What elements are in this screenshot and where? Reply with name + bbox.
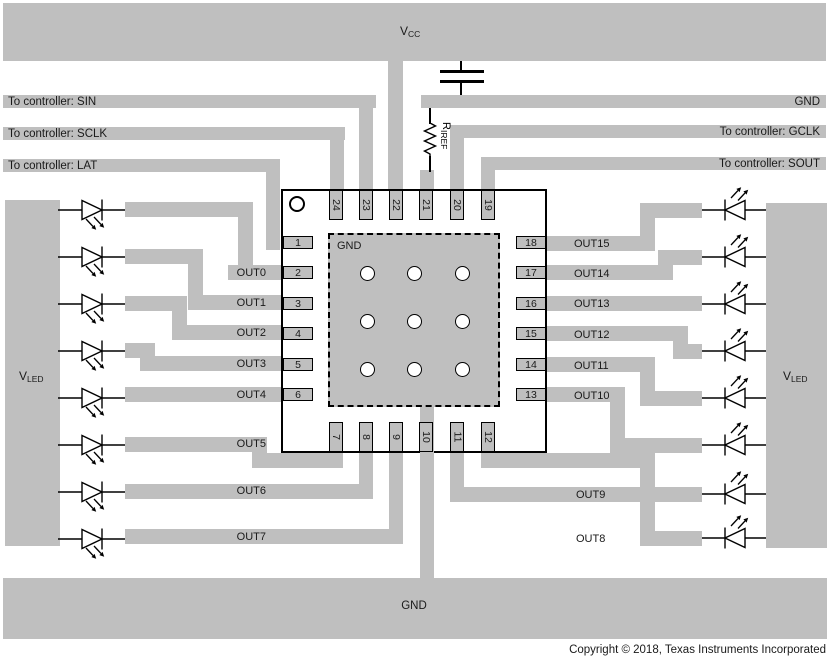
- led-left: [58, 292, 125, 332]
- led-left: [58, 245, 125, 285]
- riref-bottom-wire: [429, 156, 431, 172]
- led-left: [58, 480, 125, 520]
- pin-21: 21: [419, 190, 433, 220]
- led-left: [58, 433, 125, 473]
- out14-run: [658, 250, 702, 265]
- pin-9: 9: [389, 422, 403, 452]
- led-right: [702, 468, 766, 508]
- pin-11: 11: [450, 422, 464, 452]
- out15-run: [640, 203, 702, 218]
- out12-pin-trace: [544, 326, 688, 341]
- via: [360, 314, 375, 329]
- pad-gnd-label: GND: [337, 240, 361, 253]
- out11-run: [640, 391, 702, 406]
- led-left: [58, 198, 125, 238]
- pin-6: 6: [283, 388, 313, 401]
- led-left: [58, 386, 125, 426]
- capacitor-bottom-stem: [460, 83, 462, 95]
- out5-label: OUT5: [208, 438, 266, 451]
- gnd-bar-label: GND: [700, 96, 820, 109]
- via: [455, 362, 470, 377]
- via: [360, 362, 375, 377]
- out3-label: OUT3: [208, 358, 266, 371]
- out10-label: OUT10: [574, 390, 609, 403]
- pin-7: 7: [329, 422, 343, 452]
- sin-trace-vertical: [359, 95, 373, 190]
- via: [455, 266, 470, 281]
- led-right: [702, 419, 766, 459]
- pcb-layout-diagram: RIREF GND: [0, 0, 829, 662]
- sout-trace-vertical: [481, 157, 495, 190]
- out13-trace: [544, 296, 702, 311]
- pin-23: 23: [359, 190, 373, 220]
- sout-label: To controller: SOUT: [640, 158, 820, 171]
- lat-trace-vertical: [266, 159, 280, 250]
- out15-label: OUT15: [574, 238, 609, 251]
- pin-4: 4: [283, 327, 313, 340]
- vled-right-label: VLED: [783, 370, 808, 386]
- sin-label: To controller: SIN: [8, 96, 96, 109]
- led-right: [702, 325, 766, 365]
- copyright-notice: Copyright © 2018, Texas Instruments Inco…: [500, 644, 826, 657]
- riref-label: RIREF: [439, 122, 452, 149]
- out8-run2: [640, 531, 702, 546]
- via: [455, 314, 470, 329]
- led-left: [58, 527, 125, 567]
- sclk-trace-vertical: [330, 127, 344, 190]
- gclk-label: To controller: GCLK: [640, 126, 820, 139]
- out0-label: OUT0: [208, 267, 266, 280]
- riref-top-wire: [429, 108, 431, 124]
- via: [407, 314, 422, 329]
- gnd-plane-label: GND: [384, 600, 444, 613]
- vled-left-label: VLED: [19, 370, 44, 386]
- riref-resistor-icon: [421, 123, 439, 157]
- pin8-stub: [359, 450, 373, 499]
- pin9-stub: [389, 450, 403, 544]
- via: [407, 362, 422, 377]
- vcc-trace-vertical: [388, 58, 403, 190]
- out6-label: OUT6: [208, 485, 266, 498]
- out12-label: OUT12: [574, 329, 609, 342]
- out8-run1: [481, 453, 655, 468]
- pin-18: 18: [516, 236, 546, 249]
- out2-label: OUT2: [208, 327, 266, 340]
- out9-label: OUT9: [576, 489, 605, 502]
- out12-run: [673, 344, 702, 359]
- led-right: [702, 372, 766, 412]
- led-left: [58, 339, 125, 379]
- pin-2: 2: [283, 266, 313, 279]
- out4-label: OUT4: [208, 389, 266, 402]
- pin-22: 22: [389, 190, 403, 220]
- pin-17: 17: [516, 266, 546, 279]
- pin-20: 20: [450, 190, 464, 220]
- pin-3: 3: [283, 297, 313, 310]
- out7-label: OUT7: [208, 531, 266, 544]
- pin-13: 13: [516, 388, 546, 401]
- gclk-trace-vertical: [450, 125, 464, 190]
- lat-label: To controller: LAT: [8, 160, 97, 173]
- pin-10: 10: [419, 422, 433, 452]
- vcc-label: VCC: [400, 25, 420, 41]
- capacitor-plate-bottom: [440, 80, 484, 83]
- pin-15: 15: [516, 327, 546, 340]
- pin-8: 8: [359, 422, 373, 452]
- pin1-indicator-icon: [289, 196, 305, 212]
- iref-pad-stub: [420, 170, 434, 190]
- out11-label: OUT11: [574, 360, 609, 373]
- out8-label: OUT8: [576, 533, 605, 546]
- sclk-label: To controller: SCLK: [8, 128, 107, 141]
- out13-label: OUT13: [574, 298, 609, 311]
- out10-run: [610, 438, 702, 453]
- pin-5: 5: [283, 358, 313, 371]
- pin-12: 12: [481, 422, 495, 452]
- via: [360, 266, 375, 281]
- capacitor-plate-top: [440, 70, 484, 73]
- via: [407, 266, 422, 281]
- pin-19: 19: [481, 190, 495, 220]
- pin-1: 1: [283, 236, 313, 249]
- led-right: [702, 231, 766, 271]
- capacitor-top-stem: [460, 61, 462, 70]
- pin-16: 16: [516, 297, 546, 310]
- led-right: [702, 278, 766, 318]
- out1-label: OUT1: [208, 297, 266, 310]
- led-right: [702, 512, 766, 552]
- led-right: [702, 184, 766, 224]
- out0-led-trace: [125, 202, 253, 217]
- pin-14: 14: [516, 358, 546, 371]
- out14-label: OUT14: [574, 268, 609, 281]
- pin-24: 24: [329, 190, 343, 220]
